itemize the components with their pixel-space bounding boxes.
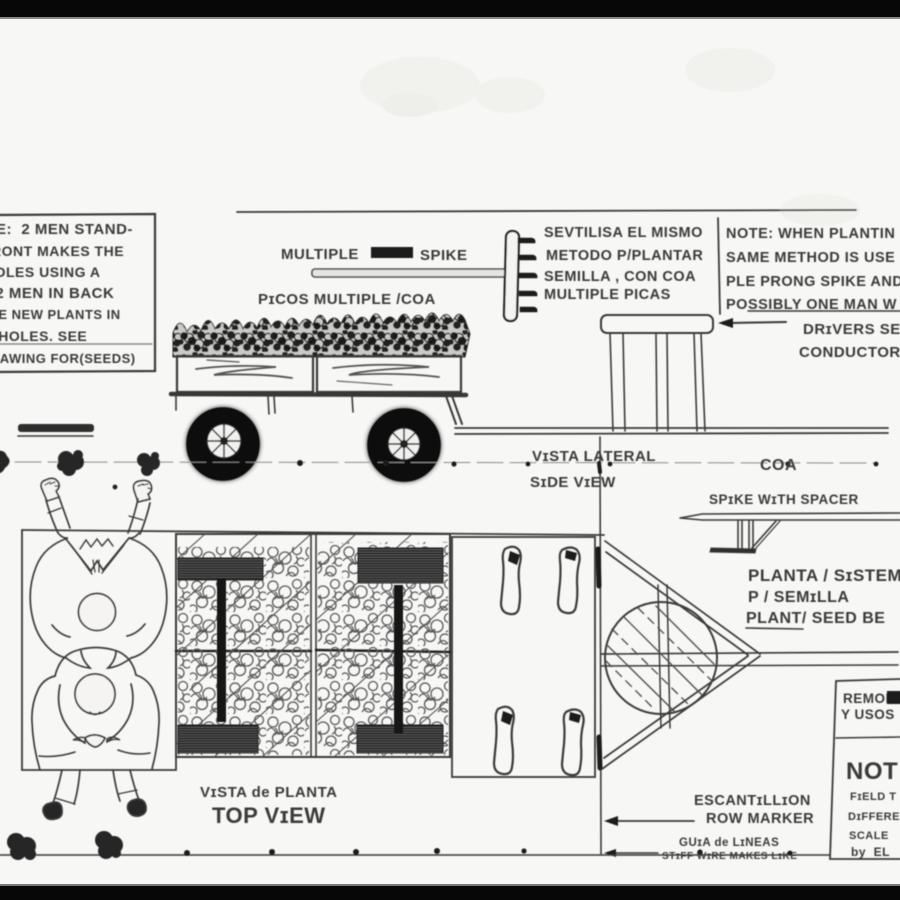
svg-text:FRONT MAKES THE: FRONT MAKES THE bbox=[0, 243, 124, 259]
svg-text:NOT: NOT bbox=[846, 758, 898, 785]
svg-text:SPIKE: SPIKE bbox=[420, 247, 468, 264]
svg-text:PLE PRONG SPIKE AND: PLE PRONG SPIKE AND bbox=[726, 274, 900, 290]
svg-text:DɪFFERE: DɪFFERE bbox=[848, 811, 900, 823]
svg-text:THE NEW PLANTS IN: THE NEW PLANTS IN bbox=[0, 307, 121, 322]
svg-text:E: 2 MEN STAND-: E: 2 MEN STAND- bbox=[0, 221, 133, 238]
svg-text:NOTE: WHEN PLANTIN: NOTE: WHEN PLANTIN bbox=[726, 226, 895, 242]
svg-text:SPɪKE WɪTH SPACER: SPɪKE WɪTH SPACER bbox=[709, 492, 859, 507]
svg-text:SɪDE VɪEW: SɪDE VɪEW bbox=[530, 474, 616, 491]
svg-text:DRɪVERS SE: DRɪVERS SE bbox=[803, 321, 900, 338]
svg-text:PLANT/ SEED BE: PLANT/ SEED BE bbox=[746, 610, 885, 627]
svg-text:MULTIPLE PICAS: MULTIPLE PICAS bbox=[544, 287, 671, 303]
svg-text:SAME METHOD IS USE: SAME METHOD IS USE bbox=[726, 250, 895, 266]
svg-text:TOP VɪEW: TOP VɪEW bbox=[212, 803, 326, 828]
svg-text:. 2 MEN IN BACK: . 2 MEN IN BACK bbox=[0, 285, 114, 302]
svg-text:HOLES USING A: HOLES USING A bbox=[0, 264, 100, 280]
svg-text:ESCANTɪLLɪON: ESCANTɪLLɪON bbox=[694, 793, 811, 809]
svg-text:METODO P/PLANTAR: METODO P/PLANTAR bbox=[546, 248, 703, 264]
svg-text:VɪSTA de PLANTA: VɪSTA de PLANTA bbox=[200, 784, 337, 801]
svg-text:P / SEMɪLLA: P / SEMɪLLA bbox=[748, 589, 849, 606]
svg-text:PLANTA / SɪSTEMA: PLANTA / SɪSTEMA bbox=[748, 566, 900, 585]
svg-text:GUɪA de LɪNEAS: GUɪA de LɪNEAS bbox=[679, 837, 779, 849]
svg-text:SEMILLA , CON COA: SEMILLA , CON COA bbox=[544, 269, 696, 285]
svg-text:by EL: by EL bbox=[851, 845, 890, 859]
svg-text:VɪSTA LATERAL: VɪSTA LATERAL bbox=[532, 448, 656, 465]
svg-text:CONDUCTOR: CONDUCTOR bbox=[799, 344, 900, 361]
svg-text:ROW MARKER: ROW MARKER bbox=[706, 811, 814, 827]
svg-text:FɪELD T: FɪELD T bbox=[850, 791, 896, 803]
svg-text:PɪCOS MULTIPLE /COA: PɪCOS MULTIPLE /COA bbox=[258, 291, 436, 308]
svg-text:DRAWING FOR(SEEDS): DRAWING FOR(SEEDS) bbox=[0, 351, 136, 366]
svg-text:COA: COA bbox=[760, 457, 797, 474]
svg-text:SEVTILISA EL MISMO: SEVTILISA EL MISMO bbox=[544, 225, 703, 241]
svg-text:STɪFF WɪRE MAKES LɪKE: STɪFF WɪRE MAKES LɪKE bbox=[662, 851, 797, 862]
svg-text:Y USOS: Y USOS bbox=[841, 707, 895, 722]
svg-text:E HOLES. SEE: E HOLES. SEE bbox=[0, 328, 87, 344]
svg-text:REMOL: REMOL bbox=[843, 691, 894, 706]
svg-text:SCALE: SCALE bbox=[849, 830, 889, 842]
svg-text:MULTIPLE: MULTIPLE bbox=[281, 246, 359, 263]
